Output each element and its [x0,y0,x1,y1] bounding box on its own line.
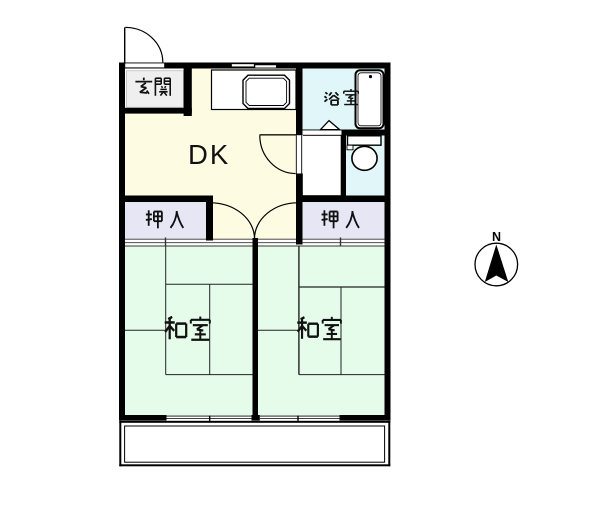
svg-text:DK: DK [188,139,230,170]
svg-text:N: N [492,230,501,244]
